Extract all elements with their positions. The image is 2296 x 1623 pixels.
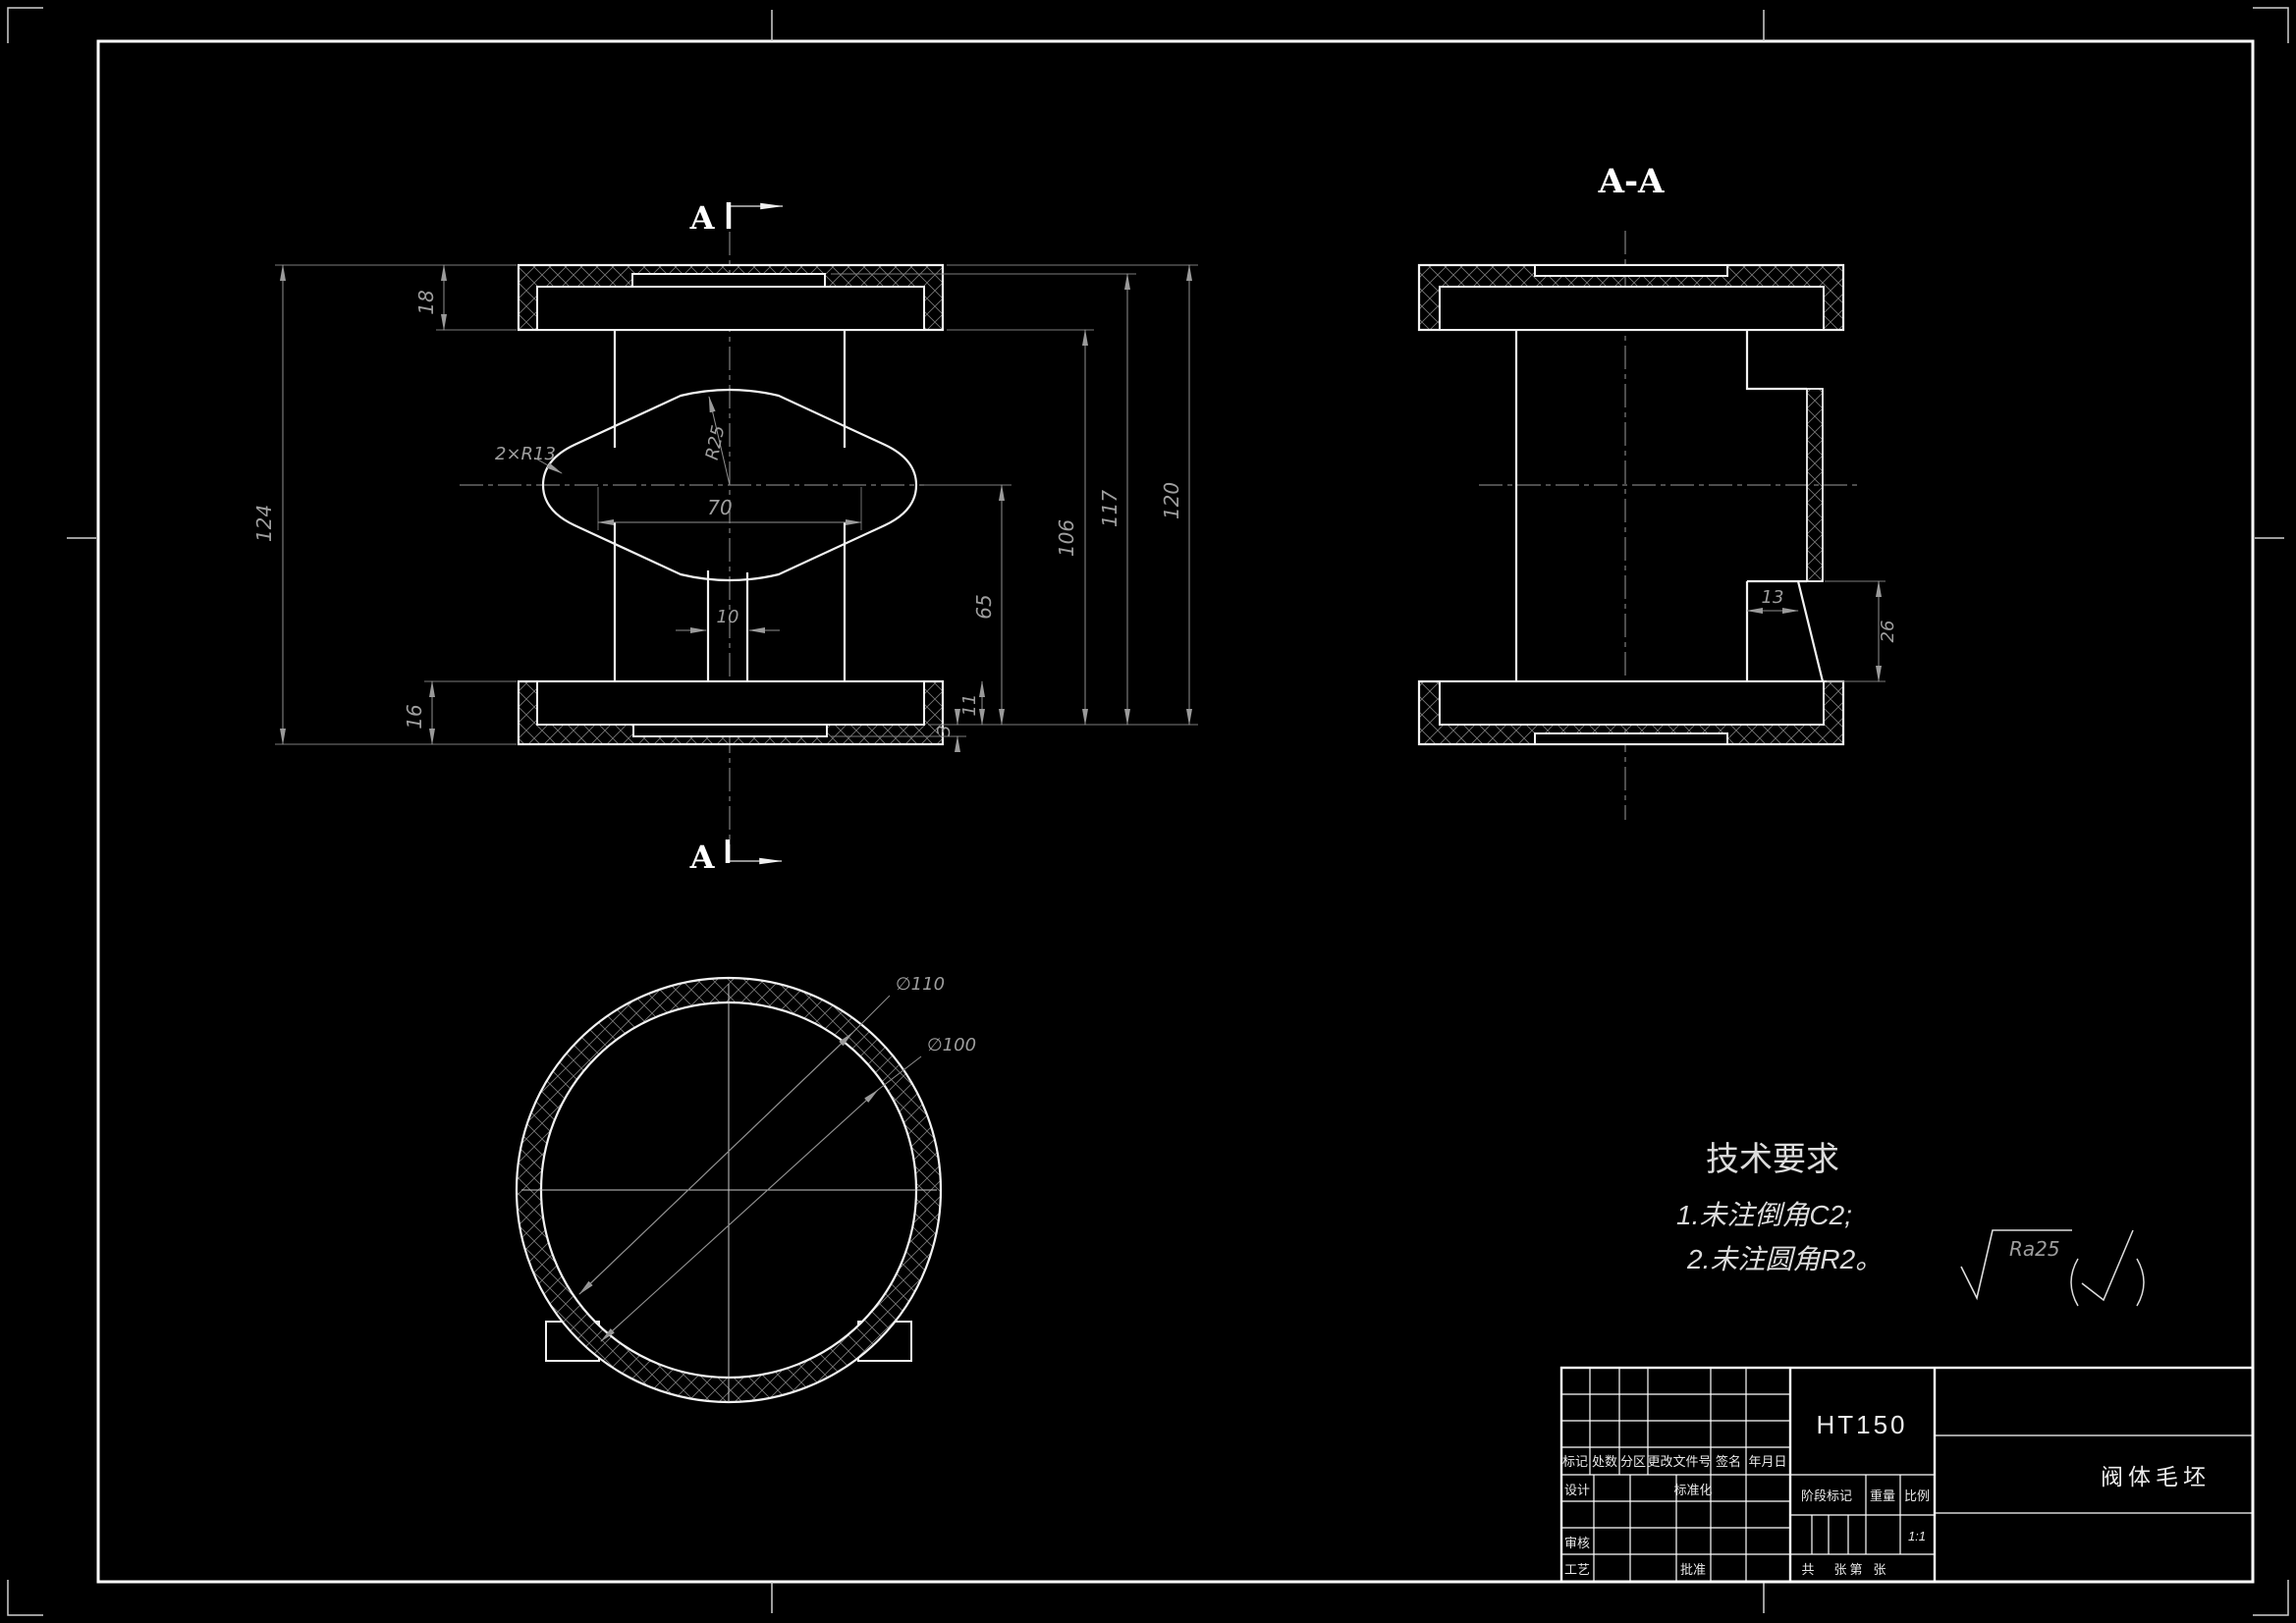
dim-117: 117 <box>1098 490 1121 527</box>
dim-26: 26 <box>1878 621 1898 643</box>
section-seat-strip <box>1807 389 1823 581</box>
tech-req-title: 技术要求 <box>1706 1141 1839 1178</box>
drawing-sheet: A A 124 18 16 70 10 65 106 117 <box>0 0 2296 1623</box>
tb-part-name: 阀体毛坯 <box>2101 1464 2211 1489</box>
tb-row-design: 设计 <box>1564 1483 1590 1497</box>
tb-scale-label: 比例 <box>1904 1488 1930 1503</box>
front-top-boss <box>632 274 825 287</box>
tb-row-check: 审核 <box>1564 1536 1590 1550</box>
tb-page-label: 第 <box>1849 1562 1862 1577</box>
tb-scale-value: 1:1 <box>1908 1529 1926 1543</box>
dim-120: 120 <box>1160 482 1183 519</box>
tb-stage-mark: 阶段标记 <box>1801 1488 1852 1503</box>
dim-124: 124 <box>252 505 276 542</box>
dim-dia110: ∅110 <box>896 974 945 995</box>
dim-3: 3 <box>934 725 955 735</box>
roughness-value: Ra25 <box>2009 1237 2060 1261</box>
section-bottom-notch <box>1535 733 1727 744</box>
section-letter-bottom: A <box>689 839 716 876</box>
tb-col-date: 年月日 <box>1748 1454 1786 1469</box>
dim-16: 16 <box>403 704 426 729</box>
dim-106: 106 <box>1055 519 1078 557</box>
tb-total-label: 共 <box>1801 1562 1814 1577</box>
tb-row-standardize: 标准化 <box>1673 1483 1712 1497</box>
section-top-notch <box>1535 265 1727 276</box>
label-2xR13: 2×R13 <box>495 444 556 464</box>
dim-10: 10 <box>717 607 739 627</box>
tb-row-approve: 批准 <box>1680 1562 1706 1577</box>
section-bottom-recess <box>1440 681 1824 725</box>
tech-req-item1: 1.未注倒角C2; <box>1676 1200 1852 1230</box>
tb-col-mark: 标记 <box>1562 1454 1588 1469</box>
tb-page-unit: 张 <box>1873 1562 1886 1577</box>
sheet-background <box>0 0 2296 1623</box>
tb-col-count: 处数 <box>1592 1454 1617 1469</box>
tb-col-zone: 分区 <box>1620 1454 1646 1469</box>
tb-total-unit: 张 <box>1833 1562 1846 1577</box>
tech-req-item2: 2.未注圆角R2。 <box>1686 1244 1883 1274</box>
dim-13: 13 <box>1762 587 1784 608</box>
dim-65: 65 <box>972 594 996 619</box>
tb-material: HT150 <box>1816 1410 1907 1439</box>
section-top-recess <box>1440 287 1824 330</box>
dim-18: 18 <box>414 290 438 314</box>
tb-col-sign: 签名 <box>1716 1454 1741 1469</box>
dim-11: 11 <box>959 694 980 717</box>
section-title: A-A <box>1598 162 1665 201</box>
tb-col-change-no: 更改文件号 <box>1647 1454 1711 1469</box>
tb-row-process: 工艺 <box>1564 1562 1590 1577</box>
section-letter-top: A <box>689 199 716 237</box>
tb-weight: 重量 <box>1870 1488 1895 1503</box>
dim-70: 70 <box>707 496 732 519</box>
front-top-flange-recess <box>537 287 924 330</box>
front-bottom-flange-recess <box>537 681 924 725</box>
dim-dia100: ∅100 <box>927 1035 976 1055</box>
front-bottom-boss <box>633 725 827 736</box>
